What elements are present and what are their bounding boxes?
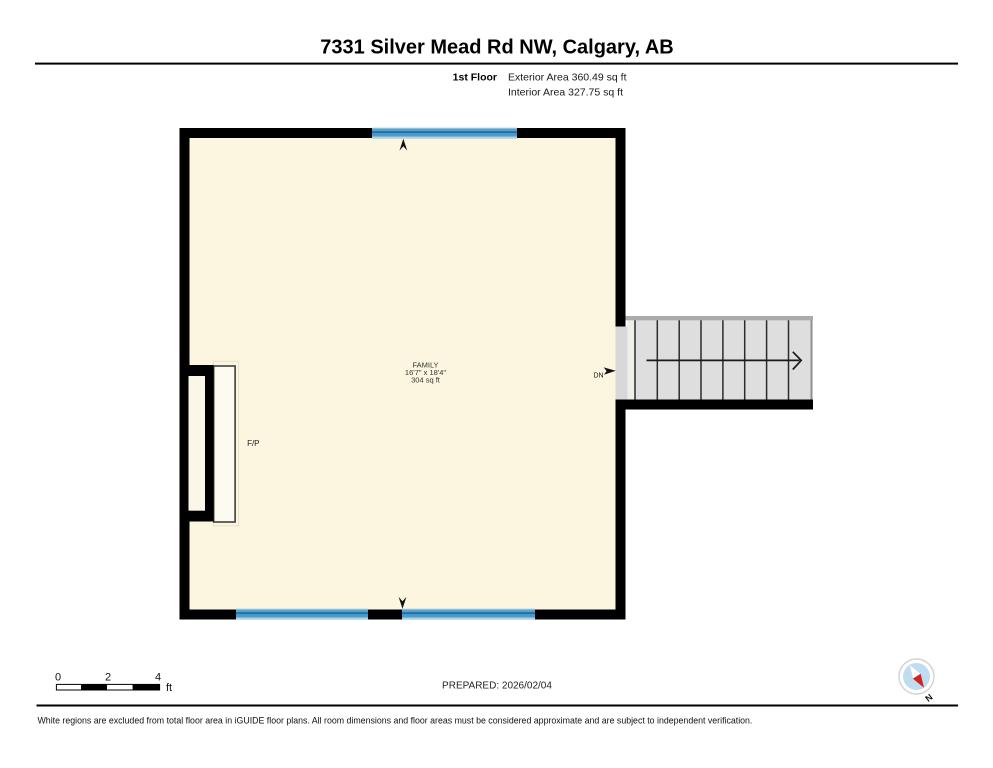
svg-text:PREPARED: 2026/02/04: PREPARED: 2026/02/04	[442, 681, 552, 692]
svg-text:ft: ft	[166, 682, 172, 694]
svg-text:Interior Area 327.75 sq ft: Interior Area 327.75 sq ft	[508, 87, 623, 99]
svg-text:DN: DN	[594, 373, 604, 380]
svg-text:1st Floor: 1st Floor	[453, 72, 497, 84]
svg-text:White regions are excluded fro: White regions are excluded from total fl…	[38, 716, 753, 726]
svg-text:4: 4	[155, 672, 161, 684]
svg-text:F/P: F/P	[247, 439, 259, 448]
svg-text:0: 0	[55, 672, 61, 684]
svg-text:304 sq ft: 304 sq ft	[411, 376, 441, 385]
svg-text:2: 2	[105, 672, 111, 684]
svg-text:Exterior Area 360.49 sq ft: Exterior Area 360.49 sq ft	[508, 72, 627, 84]
svg-text:7331 Silver Mead Rd NW, Calgar: 7331 Silver Mead Rd NW, Calgary, AB	[320, 37, 673, 59]
